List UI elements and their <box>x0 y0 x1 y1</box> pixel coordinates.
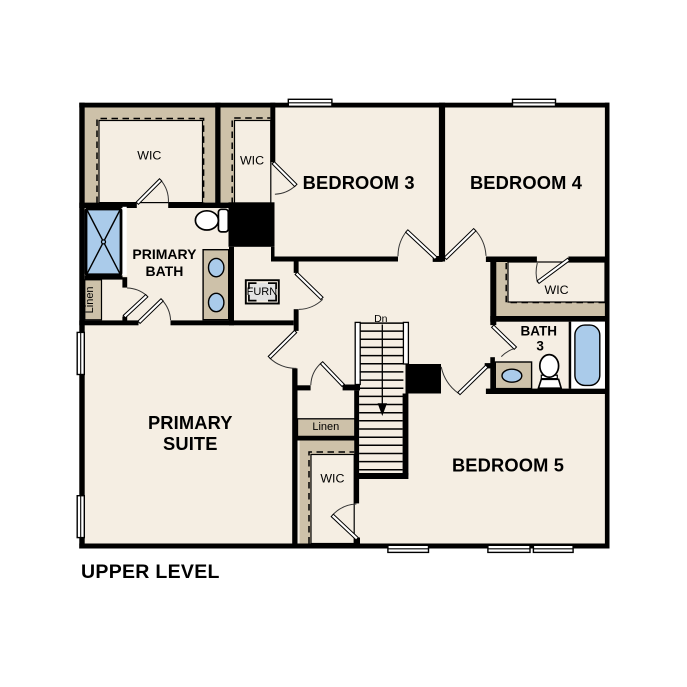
svg-text:BEDROOM 5: BEDROOM 5 <box>452 455 564 476</box>
svg-text:Linen: Linen <box>312 421 339 433</box>
svg-text:WIC: WIC <box>137 149 161 163</box>
svg-text:WIC: WIC <box>320 472 344 486</box>
svg-text:WIC: WIC <box>545 283 569 297</box>
svg-text:WIC: WIC <box>240 153 264 167</box>
svg-text:BEDROOM 4: BEDROOM 4 <box>470 172 583 193</box>
svg-text:UPPER LEVEL: UPPER LEVEL <box>81 561 220 583</box>
svg-text:PRIMARY: PRIMARY <box>148 412 233 433</box>
svg-text:Linen: Linen <box>84 286 96 313</box>
svg-text:BATH: BATH <box>145 263 183 279</box>
svg-text:3: 3 <box>536 339 544 354</box>
svg-text:PRIMARY: PRIMARY <box>132 246 197 262</box>
svg-text:BATH: BATH <box>521 323 558 338</box>
svg-text:SUITE: SUITE <box>163 433 218 454</box>
svg-text:Dn: Dn <box>374 313 388 325</box>
svg-text:FURN: FURN <box>247 286 278 298</box>
svg-text:BEDROOM 3: BEDROOM 3 <box>303 172 415 193</box>
